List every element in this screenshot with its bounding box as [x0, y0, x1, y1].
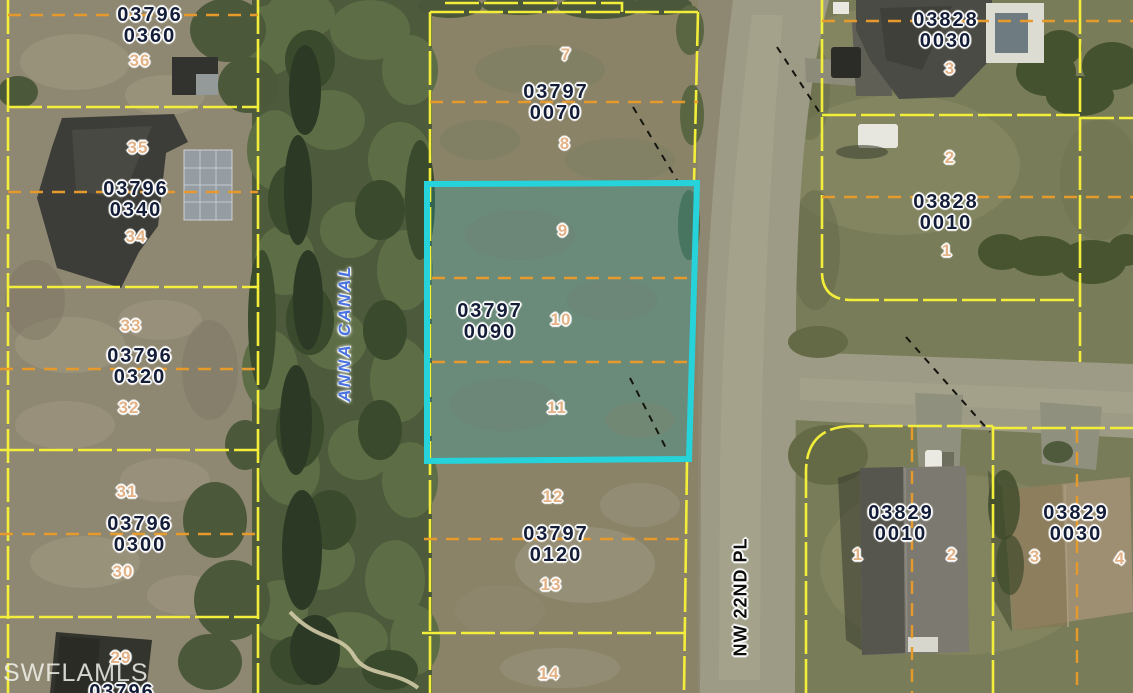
lot-number-7: 7: [561, 45, 571, 65]
lot-number-31: 31: [117, 482, 138, 502]
lot-number-right-bottom-1: 1: [853, 545, 863, 565]
parcel-label-03796-0300: 037960300: [107, 514, 173, 556]
lot-number-10: 10: [551, 310, 572, 330]
pool: [995, 13, 1028, 53]
parcel-label-03829-0030: 038290030: [1043, 503, 1109, 545]
lot-number-12: 12: [543, 487, 564, 507]
lot-number-right-bottom-4: 4: [1115, 549, 1125, 569]
parcel-label-03796-0320: 037960320: [107, 346, 173, 388]
white-car-lot2: [858, 124, 898, 148]
lot-number-30: 30: [113, 562, 134, 582]
parcel-label-03796-0340: 037960340: [103, 179, 169, 221]
lot-number-36: 36: [130, 51, 151, 71]
parcel-label-03797-0090: 037970090: [457, 301, 523, 343]
mls-watermark: SWFLAMLS: [3, 659, 149, 688]
lot-number-right-bottom-3: 3: [1030, 547, 1040, 567]
canal-name-label: ANNA CANAL: [335, 264, 355, 402]
lot-number-33: 33: [121, 316, 142, 336]
street-name-label: NW 22ND PL: [731, 537, 752, 656]
lot-number-11: 11: [547, 398, 567, 418]
lot-number-right-top-3: 3: [945, 59, 955, 79]
parcel-label-03797-0120: 037970120: [523, 524, 589, 566]
lot-number-13: 13: [541, 575, 562, 595]
parcel-label-03796-0360: 037960360: [117, 5, 183, 47]
lot-number-34: 34: [126, 227, 147, 247]
lot-number-32: 32: [119, 398, 140, 418]
parcel-label-03829-0010: 038290010: [868, 503, 934, 545]
lot-number-right-top-2: 2: [945, 148, 955, 168]
lot-number-8: 8: [560, 134, 570, 154]
dark-car: [831, 47, 861, 78]
lot-number-9: 9: [558, 221, 568, 241]
parcel-label-03797-0070: 037970070: [523, 82, 589, 124]
parcel-label-03828-0010: 038280010: [913, 192, 979, 234]
lot-number-14: 14: [539, 664, 560, 684]
lot-number-right-bottom-2: 2: [947, 545, 957, 565]
white-trailer: [833, 2, 849, 14]
parcel-label-03828-0030: 038280030: [913, 10, 979, 52]
lot-number-right-top-1: 1: [942, 241, 952, 261]
lot-number-35: 35: [128, 138, 149, 158]
aerial-parcel-map[interactable]: 037960360 037960340 037960320 037960300 …: [0, 0, 1133, 693]
